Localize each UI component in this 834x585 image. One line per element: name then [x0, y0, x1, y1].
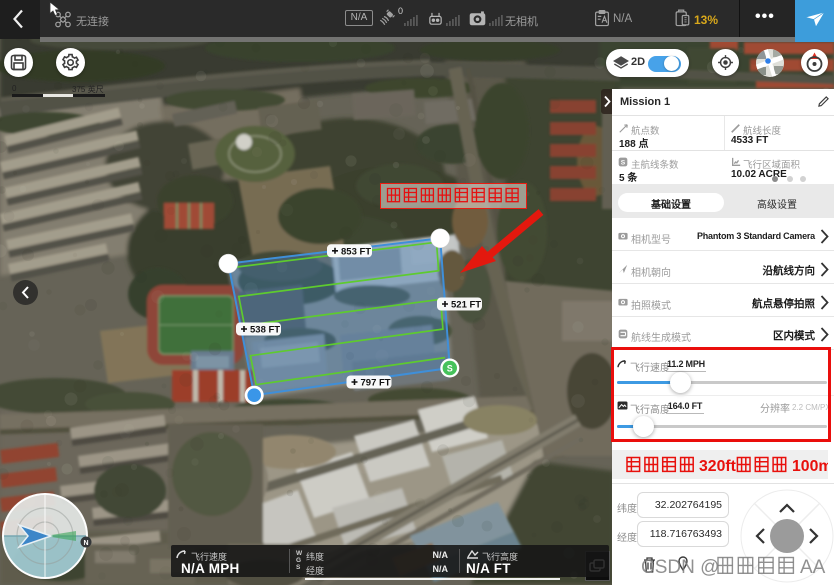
svg-text:N: N: [83, 540, 88, 547]
svg-text:CSDN @: CSDN @: [641, 557, 719, 578]
svg-text:797 FT: 797 FT: [361, 378, 391, 389]
svg-text:538 FT: 538 FT: [250, 325, 280, 336]
svg-text:S: S: [447, 363, 453, 373]
svg-text:320ft: 320ft: [699, 458, 737, 475]
svg-text:853 FT: 853 FT: [341, 246, 371, 257]
svg-text:S: S: [621, 160, 626, 167]
svg-text:521 FT: 521 FT: [451, 300, 481, 311]
svg-text:AA: AA: [800, 557, 826, 578]
svg-text:100m: 100m: [792, 458, 828, 475]
